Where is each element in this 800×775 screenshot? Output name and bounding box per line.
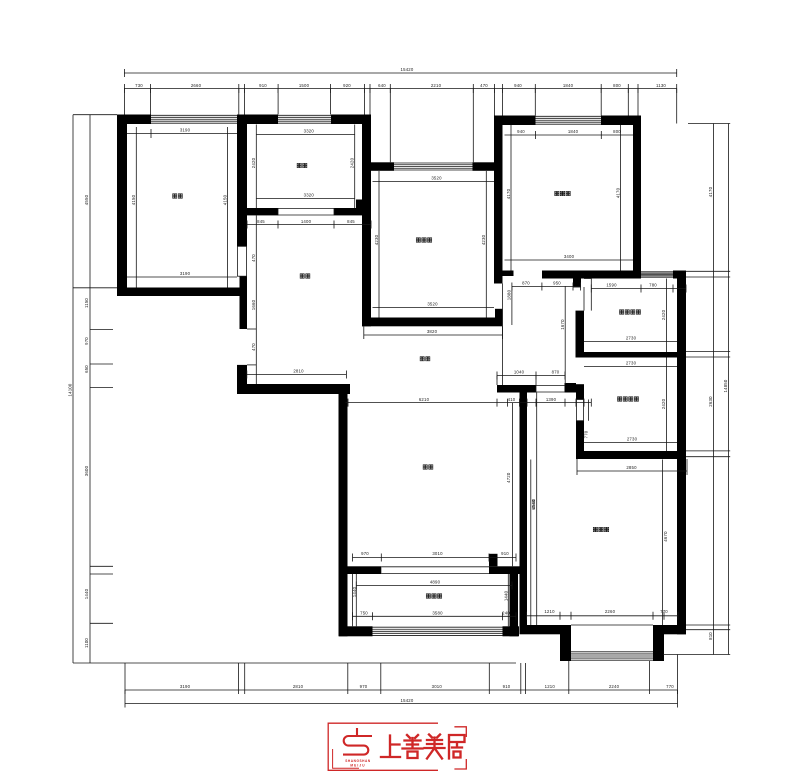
svg-text:3010: 3010 <box>432 551 443 556</box>
svg-text:3190: 3190 <box>180 128 191 133</box>
svg-text:970: 970 <box>360 684 368 689</box>
svg-text:2730: 2730 <box>627 437 638 442</box>
svg-text:1840: 1840 <box>563 83 574 88</box>
svg-text:910: 910 <box>503 684 511 689</box>
svg-text:1210: 1210 <box>545 684 556 689</box>
svg-text:800: 800 <box>613 129 621 134</box>
svg-text:2730: 2730 <box>626 336 637 341</box>
svg-text:6210: 6210 <box>419 397 430 402</box>
svg-text:2810: 2810 <box>293 369 304 374</box>
svg-text:650: 650 <box>84 365 89 373</box>
svg-text:910: 910 <box>259 83 267 88</box>
svg-text:2730: 2730 <box>626 361 637 366</box>
svg-text:1130: 1130 <box>656 83 666 88</box>
svg-text:3190: 3190 <box>180 684 191 689</box>
svg-text:14850: 14850 <box>723 379 728 392</box>
svg-text:3190: 3190 <box>180 271 191 276</box>
svg-text:970: 970 <box>361 551 369 556</box>
svg-text:2260: 2260 <box>605 609 616 614</box>
svg-text:3010: 3010 <box>432 684 443 689</box>
svg-text:1400: 1400 <box>301 219 312 224</box>
svg-text:2850: 2850 <box>626 465 637 470</box>
svg-text:1840: 1840 <box>568 129 579 134</box>
svg-text:4550: 4550 <box>84 194 89 205</box>
svg-text:870: 870 <box>552 370 560 375</box>
svg-text:4670: 4670 <box>663 531 668 542</box>
svg-text:750: 750 <box>360 610 368 615</box>
svg-text:1040: 1040 <box>514 370 525 375</box>
svg-text:2420: 2420 <box>661 309 666 320</box>
svg-text:1500: 1500 <box>299 83 310 88</box>
svg-text:845: 845 <box>257 219 265 224</box>
svg-text:2810: 2810 <box>293 684 304 689</box>
svg-text:2630: 2630 <box>708 396 713 407</box>
svg-text:970: 970 <box>84 337 89 345</box>
svg-text:470: 470 <box>251 343 256 351</box>
svg-text:410: 410 <box>508 397 516 402</box>
svg-text:3320: 3320 <box>304 129 315 134</box>
svg-text:3400: 3400 <box>564 254 575 259</box>
svg-text:4150: 4150 <box>131 194 136 205</box>
svg-text:2240: 2240 <box>609 684 620 689</box>
svg-text:730: 730 <box>135 83 143 88</box>
svg-text:4230: 4230 <box>481 234 486 245</box>
svg-text:780: 780 <box>649 283 657 288</box>
svg-text:4560: 4560 <box>531 498 536 509</box>
svg-text:4150: 4150 <box>222 194 227 205</box>
svg-text:1100: 1100 <box>84 638 89 648</box>
svg-text:940: 940 <box>514 83 522 88</box>
svg-text:470: 470 <box>251 254 256 262</box>
svg-text:4890: 4890 <box>430 579 441 584</box>
svg-text:240: 240 <box>502 610 510 615</box>
svg-text:3520: 3520 <box>431 176 442 181</box>
svg-text:1670: 1670 <box>560 319 565 330</box>
svg-text:14100: 14100 <box>68 383 73 396</box>
svg-text:1660: 1660 <box>251 299 256 310</box>
svg-text:1590: 1590 <box>606 283 617 288</box>
svg-text:1150: 1150 <box>84 298 89 308</box>
svg-text:950: 950 <box>553 281 561 286</box>
svg-text:1440: 1440 <box>84 588 89 599</box>
svg-text:4720: 4720 <box>506 472 511 483</box>
svg-text:3520: 3520 <box>427 302 438 307</box>
svg-text:2660: 2660 <box>191 83 202 88</box>
svg-text:4170: 4170 <box>615 187 620 198</box>
svg-text:15420: 15420 <box>401 67 414 72</box>
svg-text:3820: 3820 <box>427 329 438 334</box>
svg-text:770: 770 <box>583 430 588 438</box>
svg-text:920: 920 <box>343 83 351 88</box>
svg-text:800: 800 <box>613 83 621 88</box>
svg-text:MEIJU: MEIJU <box>350 764 365 768</box>
svg-text:845: 845 <box>347 219 355 224</box>
svg-text:1440: 1440 <box>352 586 357 597</box>
svg-text:4170: 4170 <box>506 188 511 199</box>
svg-text:770: 770 <box>666 684 674 689</box>
svg-text:1390: 1390 <box>546 397 557 402</box>
svg-text:3580: 3580 <box>432 610 443 615</box>
svg-text:870: 870 <box>522 281 530 286</box>
svg-text:3600: 3600 <box>84 465 89 476</box>
svg-text:2210: 2210 <box>431 83 442 88</box>
svg-text:1440: 1440 <box>504 590 509 601</box>
svg-text:810: 810 <box>708 632 713 640</box>
svg-text:770: 770 <box>660 609 668 614</box>
svg-text:1210: 1210 <box>544 609 555 614</box>
svg-text:910: 910 <box>501 551 509 556</box>
svg-text:SHANGSHAN: SHANGSHAN <box>345 759 371 763</box>
svg-text:940: 940 <box>517 129 525 134</box>
svg-text:1880: 1880 <box>507 289 512 300</box>
svg-text:2420: 2420 <box>251 157 256 168</box>
svg-text:640: 640 <box>378 83 386 88</box>
svg-text:4230: 4230 <box>374 234 379 245</box>
svg-text:2420: 2420 <box>350 157 355 168</box>
svg-text:470: 470 <box>480 83 488 88</box>
svg-text:2420: 2420 <box>661 398 666 409</box>
svg-text:15420: 15420 <box>401 698 414 703</box>
svg-text:4170: 4170 <box>708 186 713 197</box>
svg-text:3320: 3320 <box>304 193 315 198</box>
